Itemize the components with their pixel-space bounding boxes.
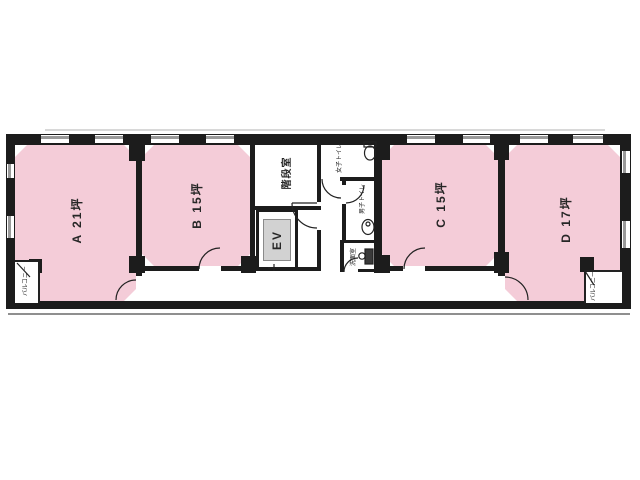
wall-stairwell-right-lower <box>317 230 321 270</box>
wall-washroom-bottom <box>358 269 374 272</box>
washroom-label: 洗面室 <box>348 237 356 277</box>
elevator-car: EV <box>263 219 291 261</box>
column <box>129 145 145 161</box>
window <box>573 135 603 143</box>
wall-stairwell-right-upper <box>317 145 321 202</box>
column <box>241 256 256 273</box>
column <box>374 145 390 160</box>
toilet-flush-icon <box>366 222 370 226</box>
toilet-women-label: 女子トイレ <box>334 138 342 178</box>
wall-washroom-left <box>340 243 344 272</box>
room-b-label: B 15坪 <box>189 165 203 245</box>
balcony-left-label: バルコニー <box>20 261 28 301</box>
window <box>151 135 179 143</box>
window <box>41 135 69 143</box>
wall-toilet-men-doorjamb <box>342 181 346 185</box>
wall-toilet-men-bottom <box>340 240 374 243</box>
column <box>494 252 509 273</box>
window <box>7 216 14 238</box>
sink-counter-icon <box>365 249 373 264</box>
wall-c-bottom-right <box>425 266 498 271</box>
wall-outer-bottom <box>6 301 631 309</box>
room-a-label: A 21坪 <box>69 180 83 260</box>
column <box>494 145 509 160</box>
balcony-right-label: バルコニー <box>588 266 596 306</box>
scan-artifact-top <box>45 129 605 131</box>
toilet-bowl-icon <box>362 220 374 235</box>
toilet-men-label: 男子トイレ <box>357 179 365 219</box>
elevator-shaft: EV <box>256 209 298 270</box>
wall-toilet-men-left <box>342 204 346 240</box>
scan-artifact-bottom <box>8 313 630 315</box>
window <box>622 221 630 248</box>
window <box>7 164 14 178</box>
wall-b-bottom-left <box>142 266 199 271</box>
elevator-label: EV <box>270 229 284 249</box>
window <box>463 135 490 143</box>
floor-plan-page: EV A 21坪 B 15坪 C 15坪 D 17坪 階段室 <box>0 0 640 480</box>
column <box>129 256 145 273</box>
wall-toilet-block-right <box>374 145 382 272</box>
window <box>407 135 435 143</box>
sink-basin-icon <box>359 253 365 259</box>
door-arc-toilet-women <box>322 179 341 198</box>
window <box>95 135 123 143</box>
window <box>520 135 548 143</box>
room-d-label: D 17坪 <box>558 179 572 259</box>
window <box>622 151 630 173</box>
column <box>374 255 390 273</box>
stairwell-label: 階段室 <box>279 138 291 208</box>
window <box>206 135 234 143</box>
room-c-label: C 15坪 <box>433 164 447 244</box>
